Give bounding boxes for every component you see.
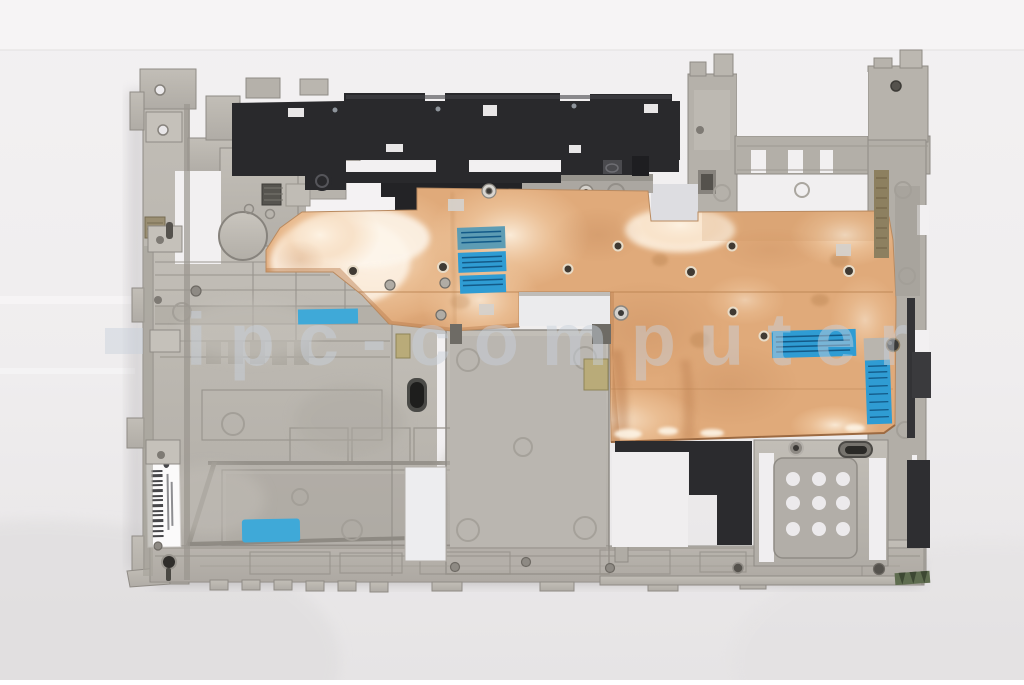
svg-text:ipc-computer: ipc-computer (186, 298, 931, 381)
